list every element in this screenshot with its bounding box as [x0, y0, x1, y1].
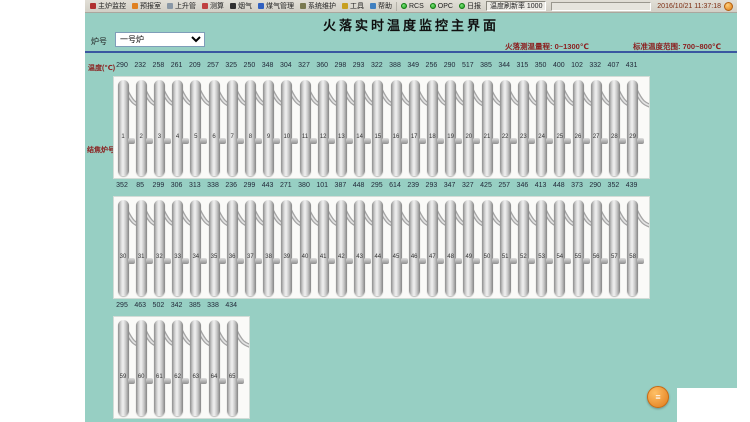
oven-tube: 31	[136, 200, 147, 296]
oven-number: 25	[554, 134, 565, 140]
oven-number: 63	[190, 374, 201, 380]
temp-value: 293	[422, 182, 440, 189]
temp-value: 332	[586, 62, 604, 69]
temp-value: 315	[513, 62, 531, 69]
oven-tube: 11	[300, 80, 311, 176]
oven-number: 55	[573, 254, 584, 260]
oven-tube: 62	[172, 320, 183, 416]
oven-tube: 3	[154, 80, 165, 176]
oven-tube: 63	[190, 320, 201, 416]
oven-number: 1	[118, 134, 129, 140]
flue-gas-icon	[230, 3, 236, 9]
temp-value: 257	[204, 62, 222, 69]
temp-value: 299	[240, 182, 258, 189]
calculate-icon	[202, 3, 208, 9]
temp-value: 327	[295, 62, 313, 69]
temp-value: 443	[259, 182, 277, 189]
oven-number: 64	[209, 374, 220, 380]
oven-number: 39	[281, 254, 292, 260]
status-light-label: OPC	[438, 0, 453, 13]
oven-tube: 8	[245, 80, 256, 176]
temp-value: 261	[168, 62, 186, 69]
temp-value: 338	[204, 182, 222, 189]
oven-panel-row-1: 1234567891011121314151617181920212223242…	[113, 76, 650, 179]
oven-number: 29	[627, 134, 638, 140]
status-light-OPC: OPC	[427, 0, 456, 13]
oven-tube: 15	[372, 80, 383, 176]
oven-tube: 65	[227, 320, 238, 416]
status-light-label: 日报	[467, 0, 481, 13]
oven-tube: 28	[609, 80, 620, 176]
oven-number: 61	[154, 374, 165, 380]
temp-value: 352	[604, 182, 622, 189]
oven-number: 24	[536, 134, 547, 140]
temp-value: 232	[131, 62, 149, 69]
oven-number: 43	[354, 254, 365, 260]
oven-tube: 64	[209, 320, 220, 416]
temp-value: 306	[168, 182, 186, 189]
temp-value: 258	[149, 62, 167, 69]
gas-manage-icon	[258, 3, 264, 9]
oven-number: 16	[391, 134, 402, 140]
oven-tube: 14	[354, 80, 365, 176]
oven-number: 5	[190, 134, 201, 140]
temp-value: 517	[459, 62, 477, 69]
oven-tube: 7	[227, 80, 238, 176]
temp-value: 448	[350, 182, 368, 189]
oven-number: 59	[118, 374, 129, 380]
oven-number: 31	[136, 254, 147, 260]
toolbar-item-tools[interactable]: 工具	[339, 0, 367, 13]
temperature-axis-label: 温度(℃)	[88, 63, 115, 73]
toolbar: 主炉监控预报室上升管测算烟气煤气管理系统维护工具帮助 RCSOPC日报 温度刷新…	[85, 0, 737, 13]
oven-tube: 43	[354, 200, 365, 296]
toolbar-item-label: 测算	[210, 0, 224, 13]
temp-value: 350	[532, 62, 550, 69]
system-maintain-icon	[300, 3, 306, 9]
oven-number: 48	[445, 254, 456, 260]
oven-tube: 32	[154, 200, 165, 296]
oven-tube: 24	[536, 80, 547, 176]
oven-number: 52	[518, 254, 529, 260]
oven-number: 50	[482, 254, 493, 260]
oven-number: 51	[500, 254, 511, 260]
temp-value: 352	[113, 182, 131, 189]
oven-tube: 45	[391, 200, 402, 296]
oven-number: 13	[336, 134, 347, 140]
oven-number-axis-label: 结焦炉号	[87, 145, 115, 155]
temp-value: 313	[186, 182, 204, 189]
temp-value: 102	[568, 62, 586, 69]
oven-tube: 20	[463, 80, 474, 176]
oven-tube: 38	[263, 200, 274, 296]
oven-tube: 39	[281, 200, 292, 296]
temp-value: 348	[259, 62, 277, 69]
toolbar-item-help[interactable]: 帮助	[367, 0, 395, 13]
oven-tube: 25	[554, 80, 565, 176]
furnace-select[interactable]: 一号炉	[115, 32, 205, 47]
oven-number: 47	[427, 254, 438, 260]
temp-value: 239	[404, 182, 422, 189]
oven-number: 10	[281, 134, 292, 140]
oven-tube: 21	[482, 80, 493, 176]
oven-tube: 5	[190, 80, 201, 176]
oven-number: 27	[591, 134, 602, 140]
oven-tube: 50	[482, 200, 493, 296]
temp-value: 373	[568, 182, 586, 189]
oven-number: 3	[154, 134, 165, 140]
app-logo-icon[interactable]	[724, 2, 733, 11]
oven-tube: 54	[554, 200, 565, 296]
oven-tube: 18	[427, 80, 438, 176]
furnace-label: 炉号	[91, 36, 107, 47]
temp-value: 250	[240, 62, 258, 69]
temp-value: 380	[295, 182, 313, 189]
oven-number: 17	[409, 134, 420, 140]
oven-tube: 56	[591, 200, 602, 296]
temp-value: 295	[368, 182, 386, 189]
toolbar-item-label: 帮助	[378, 0, 392, 13]
toolbar-item-label: 上升管	[175, 0, 196, 13]
temp-value: 448	[550, 182, 568, 189]
oven-tube: 30	[118, 200, 129, 296]
oven-number: 26	[573, 134, 584, 140]
oven-tube: 12	[318, 80, 329, 176]
toolbar-item-label: 煤气管理	[266, 0, 294, 13]
temp-value: 257	[495, 182, 513, 189]
oven-tube: 60	[136, 320, 147, 416]
oven-number: 38	[263, 254, 274, 260]
oven-tube: 58	[627, 200, 638, 296]
oven-number: 20	[463, 134, 474, 140]
status-ok-icon	[401, 3, 407, 9]
window-corner-gap	[677, 388, 737, 422]
oven-tube: 2	[136, 80, 147, 176]
oven-tube: 17	[409, 80, 420, 176]
temp-value: 387	[331, 182, 349, 189]
oven-number: 41	[318, 254, 329, 260]
forecast-icon	[132, 3, 138, 9]
toolbar-item-forecast[interactable]: 预报室	[129, 0, 164, 13]
oven-number: 15	[372, 134, 383, 140]
temp-value: 400	[550, 62, 568, 69]
oven-tube: 52	[518, 200, 529, 296]
toolbar-item-label: 预报室	[140, 0, 161, 13]
temp-value: 614	[386, 182, 404, 189]
oven-number: 14	[354, 134, 365, 140]
help-icon	[370, 3, 376, 9]
oven-tube: 19	[445, 80, 456, 176]
temp-value: 502	[149, 302, 167, 309]
oven-number: 21	[482, 134, 493, 140]
temp-value: 85	[131, 182, 149, 189]
toolbar-item-label: 主炉监控	[98, 0, 126, 13]
temp-value: 271	[277, 182, 295, 189]
oven-tube: 46	[409, 200, 420, 296]
temp-value: 463	[131, 302, 149, 309]
oven-panel-row-2: 3031323334353637383940414243444546474849…	[113, 196, 650, 299]
oven-number: 58	[627, 254, 638, 260]
temp-value: 388	[386, 62, 404, 69]
oven-tube: 57	[609, 200, 620, 296]
temp-value: 338	[204, 302, 222, 309]
oven-number: 9	[263, 134, 274, 140]
toolbar-item-label: 工具	[350, 0, 364, 13]
temp-value: 347	[441, 182, 459, 189]
status-light-label: RCS	[409, 0, 424, 13]
status-ok-icon	[459, 3, 465, 9]
oven-tube: 59	[118, 320, 129, 416]
oven-number: 65	[227, 374, 238, 380]
oven-number: 40	[300, 254, 311, 260]
oven-number: 46	[409, 254, 420, 260]
oven-number: 36	[227, 254, 238, 260]
toolbar-item-label: 系统维护	[308, 0, 336, 13]
oven-number: 19	[445, 134, 456, 140]
temp-value: 344	[495, 62, 513, 69]
temp-value: 290	[586, 182, 604, 189]
tools-icon	[342, 3, 348, 9]
oven-number: 12	[318, 134, 329, 140]
toolbar-item-riser-pipe[interactable]: 上升管	[164, 0, 199, 13]
temp-value: 407	[604, 62, 622, 69]
temp-value: 290	[113, 62, 131, 69]
status-light-日报: 日报	[456, 0, 484, 13]
oven-number: 23	[518, 134, 529, 140]
oven-number: 22	[500, 134, 511, 140]
oven-tube: 47	[427, 200, 438, 296]
oven-tube: 16	[391, 80, 402, 176]
temp-value: 385	[477, 62, 495, 69]
oven-number: 6	[209, 134, 220, 140]
oven-number: 62	[172, 374, 183, 380]
toolbar-menu: 主炉监控预报室上升管测算烟气煤气管理系统维护工具帮助	[87, 0, 395, 13]
toolbar-item-main-monitor[interactable]: 主炉监控	[87, 0, 129, 13]
oven-number: 56	[591, 254, 602, 260]
screenshot-stage: 主炉监控预报室上升管测算烟气煤气管理系统维护工具帮助 RCSOPC日报 温度刷新…	[0, 0, 750, 422]
toolbar-field	[551, 2, 651, 11]
temp-value: 298	[331, 62, 349, 69]
oven-tube: 53	[536, 200, 547, 296]
temp-value: 293	[350, 62, 368, 69]
oven-tube: 34	[190, 200, 201, 296]
oven-tube: 9	[263, 80, 274, 176]
temp-value: 413	[532, 182, 550, 189]
oven-tube: 36	[227, 200, 238, 296]
toolbar-status-lights: RCSOPC日报	[398, 0, 484, 13]
toolbar-item-flue-gas[interactable]: 烟气	[227, 0, 255, 13]
oven-number: 11	[300, 134, 311, 140]
temp-value: 439	[623, 182, 641, 189]
temp-value: 342	[168, 302, 186, 309]
temp-value: 299	[149, 182, 167, 189]
oven-tube: 44	[372, 200, 383, 296]
oven-tube: 48	[445, 200, 456, 296]
toolbar-item-gas-manage[interactable]: 煤气管理	[255, 0, 297, 13]
temp-value: 256	[422, 62, 440, 69]
oven-number: 37	[245, 254, 256, 260]
status-light-RCS: RCS	[398, 0, 427, 13]
oven-tube: 29	[627, 80, 638, 176]
oven-number: 33	[172, 254, 183, 260]
oven-tube: 33	[172, 200, 183, 296]
oven-tube: 41	[318, 200, 329, 296]
oven-tube: 22	[500, 80, 511, 176]
temp-value: 295	[113, 302, 131, 309]
temp-value: 360	[313, 62, 331, 69]
toolbar-item-system-maintain[interactable]: 系统维护	[297, 0, 339, 13]
oven-tube: 37	[245, 200, 256, 296]
temp-value: 290	[441, 62, 459, 69]
toolbar-separator	[396, 2, 397, 11]
oven-number: 8	[245, 134, 256, 140]
oven-number: 7	[227, 134, 238, 140]
oven-tube: 51	[500, 200, 511, 296]
oven-tube: 61	[154, 320, 165, 416]
riser-pipe-icon	[167, 3, 173, 9]
oven-number: 45	[391, 254, 402, 260]
oven-number: 53	[536, 254, 547, 260]
oven-number: 28	[609, 134, 620, 140]
oven-tube: 27	[591, 80, 602, 176]
oven-number: 44	[372, 254, 383, 260]
oven-number: 32	[154, 254, 165, 260]
oven-number: 4	[172, 134, 183, 140]
oven-number: 35	[209, 254, 220, 260]
oven-tube: 4	[172, 80, 183, 176]
temp-value: 236	[222, 182, 240, 189]
oven-number: 34	[190, 254, 201, 260]
oven-tube: 35	[209, 200, 220, 296]
datetime-label: 2016/10/21 11:37:18	[654, 0, 724, 13]
temp-value: 304	[277, 62, 295, 69]
temp-value: 101	[313, 182, 331, 189]
oven-number: 57	[609, 254, 620, 260]
oven-tube: 1	[118, 80, 129, 176]
temp-value: 322	[368, 62, 386, 69]
oven-number: 30	[118, 254, 129, 260]
temp-value: 346	[513, 182, 531, 189]
temp-value: 327	[459, 182, 477, 189]
oven-number: 49	[463, 254, 474, 260]
temp-value: 425	[477, 182, 495, 189]
toolbar-item-calculate[interactable]: 测算	[199, 0, 227, 13]
oven-number: 60	[136, 374, 147, 380]
oven-panel-row-3: 59606162636465	[113, 316, 250, 419]
header-divider	[85, 51, 737, 53]
app-window: 主炉监控预报室上升管测算烟气煤气管理系统维护工具帮助 RCSOPC日报 温度刷新…	[85, 0, 737, 422]
floating-action-button[interactable]: ≡	[647, 386, 669, 408]
oven-tube: 13	[336, 80, 347, 176]
temp-value: 349	[404, 62, 422, 69]
oven-number: 18	[427, 134, 438, 140]
temp-value: 431	[623, 62, 641, 69]
oven-tube: 6	[209, 80, 220, 176]
oven-tube: 55	[573, 200, 584, 296]
oven-number: 54	[554, 254, 565, 260]
oven-tube: 26	[573, 80, 584, 176]
oven-tube: 49	[463, 200, 474, 296]
oven-number: 42	[336, 254, 347, 260]
temp-value: 434	[222, 302, 240, 309]
oven-tube: 40	[300, 200, 311, 296]
toolbar-item-label: 烟气	[238, 0, 252, 13]
status-ok-icon	[430, 3, 436, 9]
oven-number: 2	[136, 134, 147, 140]
temp-value: 385	[186, 302, 204, 309]
oven-tube: 10	[281, 80, 292, 176]
refresh-rate-box: 温度刷新率 1000	[486, 1, 547, 11]
oven-tube: 42	[336, 200, 347, 296]
temp-value: 209	[186, 62, 204, 69]
oven-tube: 23	[518, 80, 529, 176]
temp-value: 325	[222, 62, 240, 69]
main-monitor-icon	[90, 3, 96, 9]
